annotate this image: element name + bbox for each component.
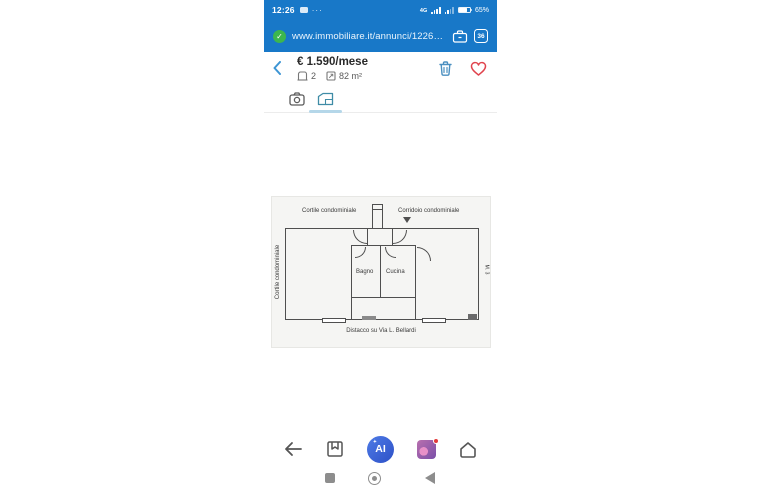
floorplan-chimney: [372, 204, 383, 229]
home-icon[interactable]: [459, 441, 477, 458]
android-system-nav: [264, 466, 497, 492]
gallery-tabs: [264, 86, 497, 113]
media-thumbnail-button[interactable]: [417, 440, 436, 459]
signal-icon: [431, 7, 440, 14]
briefcase-icon[interactable]: [452, 29, 468, 44]
clock: 12:26: [272, 5, 295, 15]
sparkle-icon: ✦: [373, 439, 377, 445]
floorplan-image[interactable]: Cortile condominiale Corridoio condomini…: [271, 196, 491, 348]
label-right-margin: M. 3: [483, 265, 488, 275]
battery-icon: [458, 7, 471, 14]
status-bar: 12:26 ··· 4G 65%: [264, 0, 497, 20]
ai-button-label: AI: [375, 443, 386, 455]
label-corridor: Corridoio condominiale: [398, 208, 459, 214]
bookmarks-book-icon[interactable]: [326, 441, 344, 457]
tab-photos-camera-icon[interactable]: [289, 92, 305, 106]
entrance-arrow-icon: [403, 217, 411, 223]
page: 12:26 ··· 4G 65% ✓ www.immobiliare.it/an…: [0, 0, 764, 492]
nav-back-arrow-icon[interactable]: [284, 441, 303, 457]
label-kitchen: Cucina: [386, 269, 405, 275]
browser-bottom-nav: ✦ AI: [264, 432, 497, 466]
notification-icon: [300, 7, 308, 13]
more-notifications-icon: ···: [312, 6, 323, 15]
area-value: 82 m²: [339, 71, 362, 81]
active-tab-indicator: [309, 110, 342, 113]
battery-percent: 65%: [475, 7, 489, 14]
label-courtyard-left: Cortile condominiale: [275, 244, 281, 300]
window-symbol: [322, 318, 346, 323]
trash-icon[interactable]: [438, 60, 453, 77]
browser-url-bar[interactable]: ✓ www.immobiliare.it/annunci/122671370/?…: [264, 20, 497, 52]
listing-meta: 2 82 m²: [297, 71, 362, 81]
phone-screen: 12:26 ··· 4G 65% ✓ www.immobiliare.it/an…: [264, 0, 497, 492]
tab-counter-button[interactable]: 36: [474, 29, 488, 43]
url-text[interactable]: www.immobiliare.it/annunci/122671370/?u: [292, 31, 446, 42]
back-chevron-icon[interactable]: [273, 61, 281, 75]
area-icon: [326, 71, 336, 81]
listing-header: € 1.590/mese 2 82 m²: [264, 52, 497, 86]
signal-icon-sim2: [445, 7, 454, 14]
rooms-icon: [297, 71, 308, 81]
tab-floorplan-icon[interactable]: [317, 92, 334, 106]
network-type-label: 4G: [420, 8, 427, 14]
system-back-button[interactable]: [425, 472, 435, 484]
recents-button[interactable]: [325, 473, 335, 483]
notification-dot: [433, 438, 439, 444]
rooms-count: 2: [311, 71, 316, 81]
security-shield-icon: ✓: [273, 30, 286, 43]
label-street-side: Distacco su Via L. Bellardi: [272, 328, 490, 334]
label-courtyard-top: Cortile condominiale: [302, 208, 356, 214]
window-symbol: [422, 318, 446, 323]
ai-assistant-button[interactable]: ✦ AI: [367, 436, 394, 463]
home-button[interactable]: [368, 472, 381, 485]
label-bathroom: Bagno: [356, 269, 373, 275]
floorplan-outer-wall: [285, 228, 479, 320]
favorite-heart-icon[interactable]: [470, 61, 487, 77]
listing-price: € 1.590/mese: [297, 56, 368, 68]
